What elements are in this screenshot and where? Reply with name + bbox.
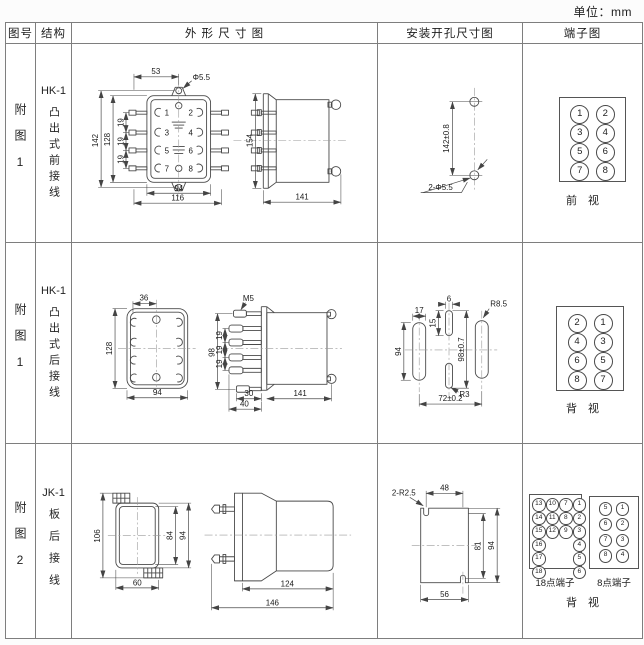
dim-m5: M5	[243, 294, 255, 303]
fig-no-label: 附图1	[12, 303, 29, 383]
dim-6: 6	[447, 294, 452, 303]
terminal-diagram-8pt: 5 1 6 2 7 3 8 4	[589, 496, 639, 569]
dim-94: 94	[179, 531, 188, 540]
header-install: 安装开孔尺寸图	[378, 23, 523, 44]
dim-142-08: 142±0.8	[442, 124, 451, 153]
model-label: JK-1	[42, 487, 65, 499]
side-view	[229, 307, 336, 393]
terminal-no-2: 2	[188, 109, 193, 118]
terminal-pin: 14	[532, 512, 546, 526]
terminal-blank	[547, 553, 559, 565]
terminal-blank	[560, 553, 572, 565]
terminal-pin: 13	[532, 498, 546, 512]
dim-36: 36	[139, 294, 148, 303]
terminal-pin: 1	[616, 502, 630, 516]
terminal-no-7: 7	[165, 164, 170, 173]
terminal-pin: 1	[594, 314, 613, 333]
terminal-pin: 2	[568, 314, 587, 333]
model-label: HK-1	[41, 285, 66, 297]
side-dimensions	[218, 303, 332, 409]
terminal-no-8: 8	[188, 164, 193, 173]
model-label: HK-1	[41, 85, 66, 97]
structure-cell-2: HK-1 凸出式后接线	[36, 243, 72, 444]
terminal-no-3: 3	[165, 129, 170, 138]
terminal-pin: 7	[559, 498, 573, 512]
spec-sheet-page: 单位：mm 图号 结构 外 形 尺 寸 图 安装开孔尺寸图 端子图 附图1 HK…	[0, 0, 644, 645]
terminal-pin: 3	[616, 534, 630, 548]
dim-94: 94	[153, 388, 162, 397]
unit-label: 单位：mm	[574, 3, 633, 20]
terminal-pin: 5	[599, 502, 613, 516]
header-fig-no: 图号	[6, 23, 36, 44]
dim-40: 40	[240, 400, 249, 409]
terminal-18pt-label: 18点端子	[523, 575, 587, 589]
dim-128: 128	[103, 132, 112, 146]
terminal-pin: 11	[546, 512, 560, 526]
terminal-diagram-8pt-front: 1 2 3 4 5 6 7 8	[559, 97, 626, 182]
fig-no-cell-1: 附图1	[6, 44, 36, 243]
dim-19c: 19	[215, 359, 224, 368]
front-extension-lines	[100, 493, 191, 590]
side-view	[251, 94, 340, 189]
header-terminal: 端子图	[523, 23, 642, 44]
terminal-pin: 15	[532, 525, 546, 539]
install-dimensions	[410, 493, 497, 599]
terminal-pin: 7	[599, 534, 613, 548]
terminal-pin: 6	[596, 143, 615, 162]
dim-146: 146	[266, 598, 280, 607]
outline-cell-2: 36 128 94	[72, 243, 378, 444]
terminal-pin: 6	[599, 518, 613, 532]
side-extension-lines	[215, 314, 331, 412]
terminal-pin: 7	[594, 371, 613, 390]
terminal-pin: 4	[596, 124, 615, 143]
outline-cell-1: 53 Φ5.5 142 128 19 19 19 94 116 1 2 3 4 …	[72, 44, 378, 243]
dim-19a: 19	[215, 331, 224, 340]
dim-19a: 19	[117, 118, 126, 127]
terminal-pin: 3	[573, 525, 587, 539]
terminal-pin: 5	[570, 143, 589, 162]
dim-154: 154	[245, 133, 254, 147]
fig-no-cell-2: 附图1	[6, 243, 36, 444]
dim-124: 124	[281, 579, 295, 588]
terminal-pin: 16	[532, 539, 546, 553]
terminal-pin: 5	[594, 352, 613, 371]
terminal-pin: 1	[573, 498, 587, 512]
install-cell-3: 2-R2.5 48 81 94 56	[378, 444, 523, 638]
terminal-pin: 8	[596, 162, 615, 181]
structure-label: 凸出式前接线	[46, 106, 62, 202]
dim-84: 84	[166, 531, 175, 540]
install-cell-2: 17 6 15 94 98±0.7 R8.5 R3 72±0.2	[378, 243, 523, 444]
dim-56: 56	[440, 590, 449, 599]
dim-141: 141	[293, 389, 307, 398]
terminal-pin: 4	[573, 539, 587, 553]
terminal-pin: 4	[616, 549, 630, 563]
terminal-pin: 6	[568, 352, 587, 371]
terminal-pin: 2	[596, 105, 615, 124]
dim-94: 94	[174, 184, 183, 193]
install-drawing-hk1-front: 142±0.8 2-Φ5.5	[378, 44, 522, 242]
dim-116: 116	[171, 194, 184, 203]
dim-142: 142	[91, 133, 100, 147]
view-label: 背 视	[523, 594, 642, 610]
install-drawing-jk1: 2-R2.5 48 81 94 56	[378, 444, 522, 638]
install-drawing-hk1-rear: 17 6 15 94 98±0.7 R8.5 R3 72±0.2	[378, 243, 522, 443]
outline-drawing-hk1-front: 53 Φ5.5 142 128 19 19 19 94 116 1 2 3 4 …	[72, 44, 377, 242]
structure-cell-3: JK-1 板后接线	[36, 444, 72, 638]
dim-48: 48	[440, 483, 449, 492]
dim-53: 53	[151, 67, 160, 76]
terminal-pin: 8	[599, 549, 613, 563]
dim-17: 17	[415, 306, 424, 315]
fig-no-label: 附图1	[12, 103, 29, 183]
dim-128: 128	[105, 341, 114, 355]
terminal-no-1: 1	[165, 109, 170, 118]
terminal-no-5: 5	[165, 146, 170, 155]
install-dimensions	[404, 304, 489, 404]
dim-2-r2-5: 2-R2.5	[392, 488, 416, 497]
terminal-pin: 1	[570, 105, 589, 124]
terminal-diagram-8pt-rear: 2 1 4 3 6 5 8 7	[556, 306, 624, 391]
mounting-slots	[413, 311, 488, 388]
dim-72-02: 72±0.2	[438, 394, 463, 403]
terminal-pin: 4	[568, 333, 587, 352]
terminal-8pt-label: 8点端子	[586, 575, 642, 589]
dim-94: 94	[487, 540, 496, 549]
dim-19c: 19	[117, 154, 126, 163]
terminal-no-4: 4	[188, 129, 193, 138]
header-outline: 外 形 尺 寸 图	[72, 23, 378, 44]
terminal-pin: 2	[616, 518, 630, 532]
dim-98-07: 98±0.7	[457, 337, 466, 362]
header-structure: 结构	[36, 23, 72, 44]
install-cell-1: 142±0.8 2-Φ5.5	[378, 44, 523, 243]
terminal-pin: 8	[559, 512, 573, 526]
dim-81: 81	[473, 541, 482, 550]
structure-cell-1: HK-1 凸出式前接线	[36, 44, 72, 243]
terminal-pin: 3	[594, 333, 613, 352]
dim-15: 15	[429, 318, 438, 327]
view-label: 前 视	[523, 192, 642, 208]
terminal-cell-1: 1 2 3 4 5 6 7 8 前 视	[523, 44, 642, 243]
outline-drawing-hk1-rear: 36 128 94	[72, 243, 377, 443]
dim-19b: 19	[215, 345, 224, 354]
dim-141: 141	[295, 193, 309, 202]
dim-106: 106	[93, 529, 102, 543]
dim-phi5-5: Φ5.5	[193, 73, 211, 82]
view-label: 背 视	[523, 400, 642, 416]
side-view	[212, 493, 334, 581]
outline-cell-3: 106 84 94 60	[72, 444, 378, 638]
terminal-pin: 9	[559, 525, 573, 539]
structure-label: 板后接线	[46, 508, 62, 596]
dim-19b: 19	[117, 137, 126, 146]
terminal-blank	[560, 540, 572, 552]
terminal-no-6: 6	[188, 146, 193, 155]
terminal-pin: 12	[546, 525, 560, 539]
terminal-cell-2: 2 1 4 3 6 5 8 7 背 视	[523, 243, 642, 444]
dim-r8-5: R8.5	[490, 300, 507, 309]
fig-no-cell-3: 附图2	[6, 444, 36, 638]
dim-94: 94	[394, 346, 403, 355]
terminal-cell-3: 13 10 7 1 14 11 8 2 15 12 9 3 16 4 17 5	[523, 444, 642, 638]
dim-60: 60	[133, 578, 142, 587]
structure-label: 凸出式后接线	[46, 306, 62, 402]
terminal-pin: 17	[532, 552, 546, 566]
dimension-table: 图号 结构 外 形 尺 寸 图 安装开孔尺寸图 端子图 附图1 HK-1 凸出式…	[5, 22, 643, 639]
fig-no-label: 附图2	[12, 501, 29, 581]
terminal-pin: 3	[570, 124, 589, 143]
terminal-pin: 7	[570, 162, 589, 181]
terminal-pin: 8	[568, 371, 587, 390]
dim-2-phi5-5: 2-Φ5.5	[428, 183, 453, 192]
dim-30: 30	[244, 389, 253, 398]
terminal-blank	[547, 540, 559, 552]
install-extension-lines	[450, 102, 483, 175]
terminal-pin: 5	[573, 552, 587, 566]
terminal-pin: 10	[546, 498, 560, 512]
terminal-diagram-18pt: 13 10 7 1 14 11 8 2 15 12 9 3 16 4 17 5	[529, 494, 582, 569]
terminal-pin: 2	[573, 512, 587, 526]
outline-drawing-jk1: 106 84 94 60	[72, 444, 377, 638]
